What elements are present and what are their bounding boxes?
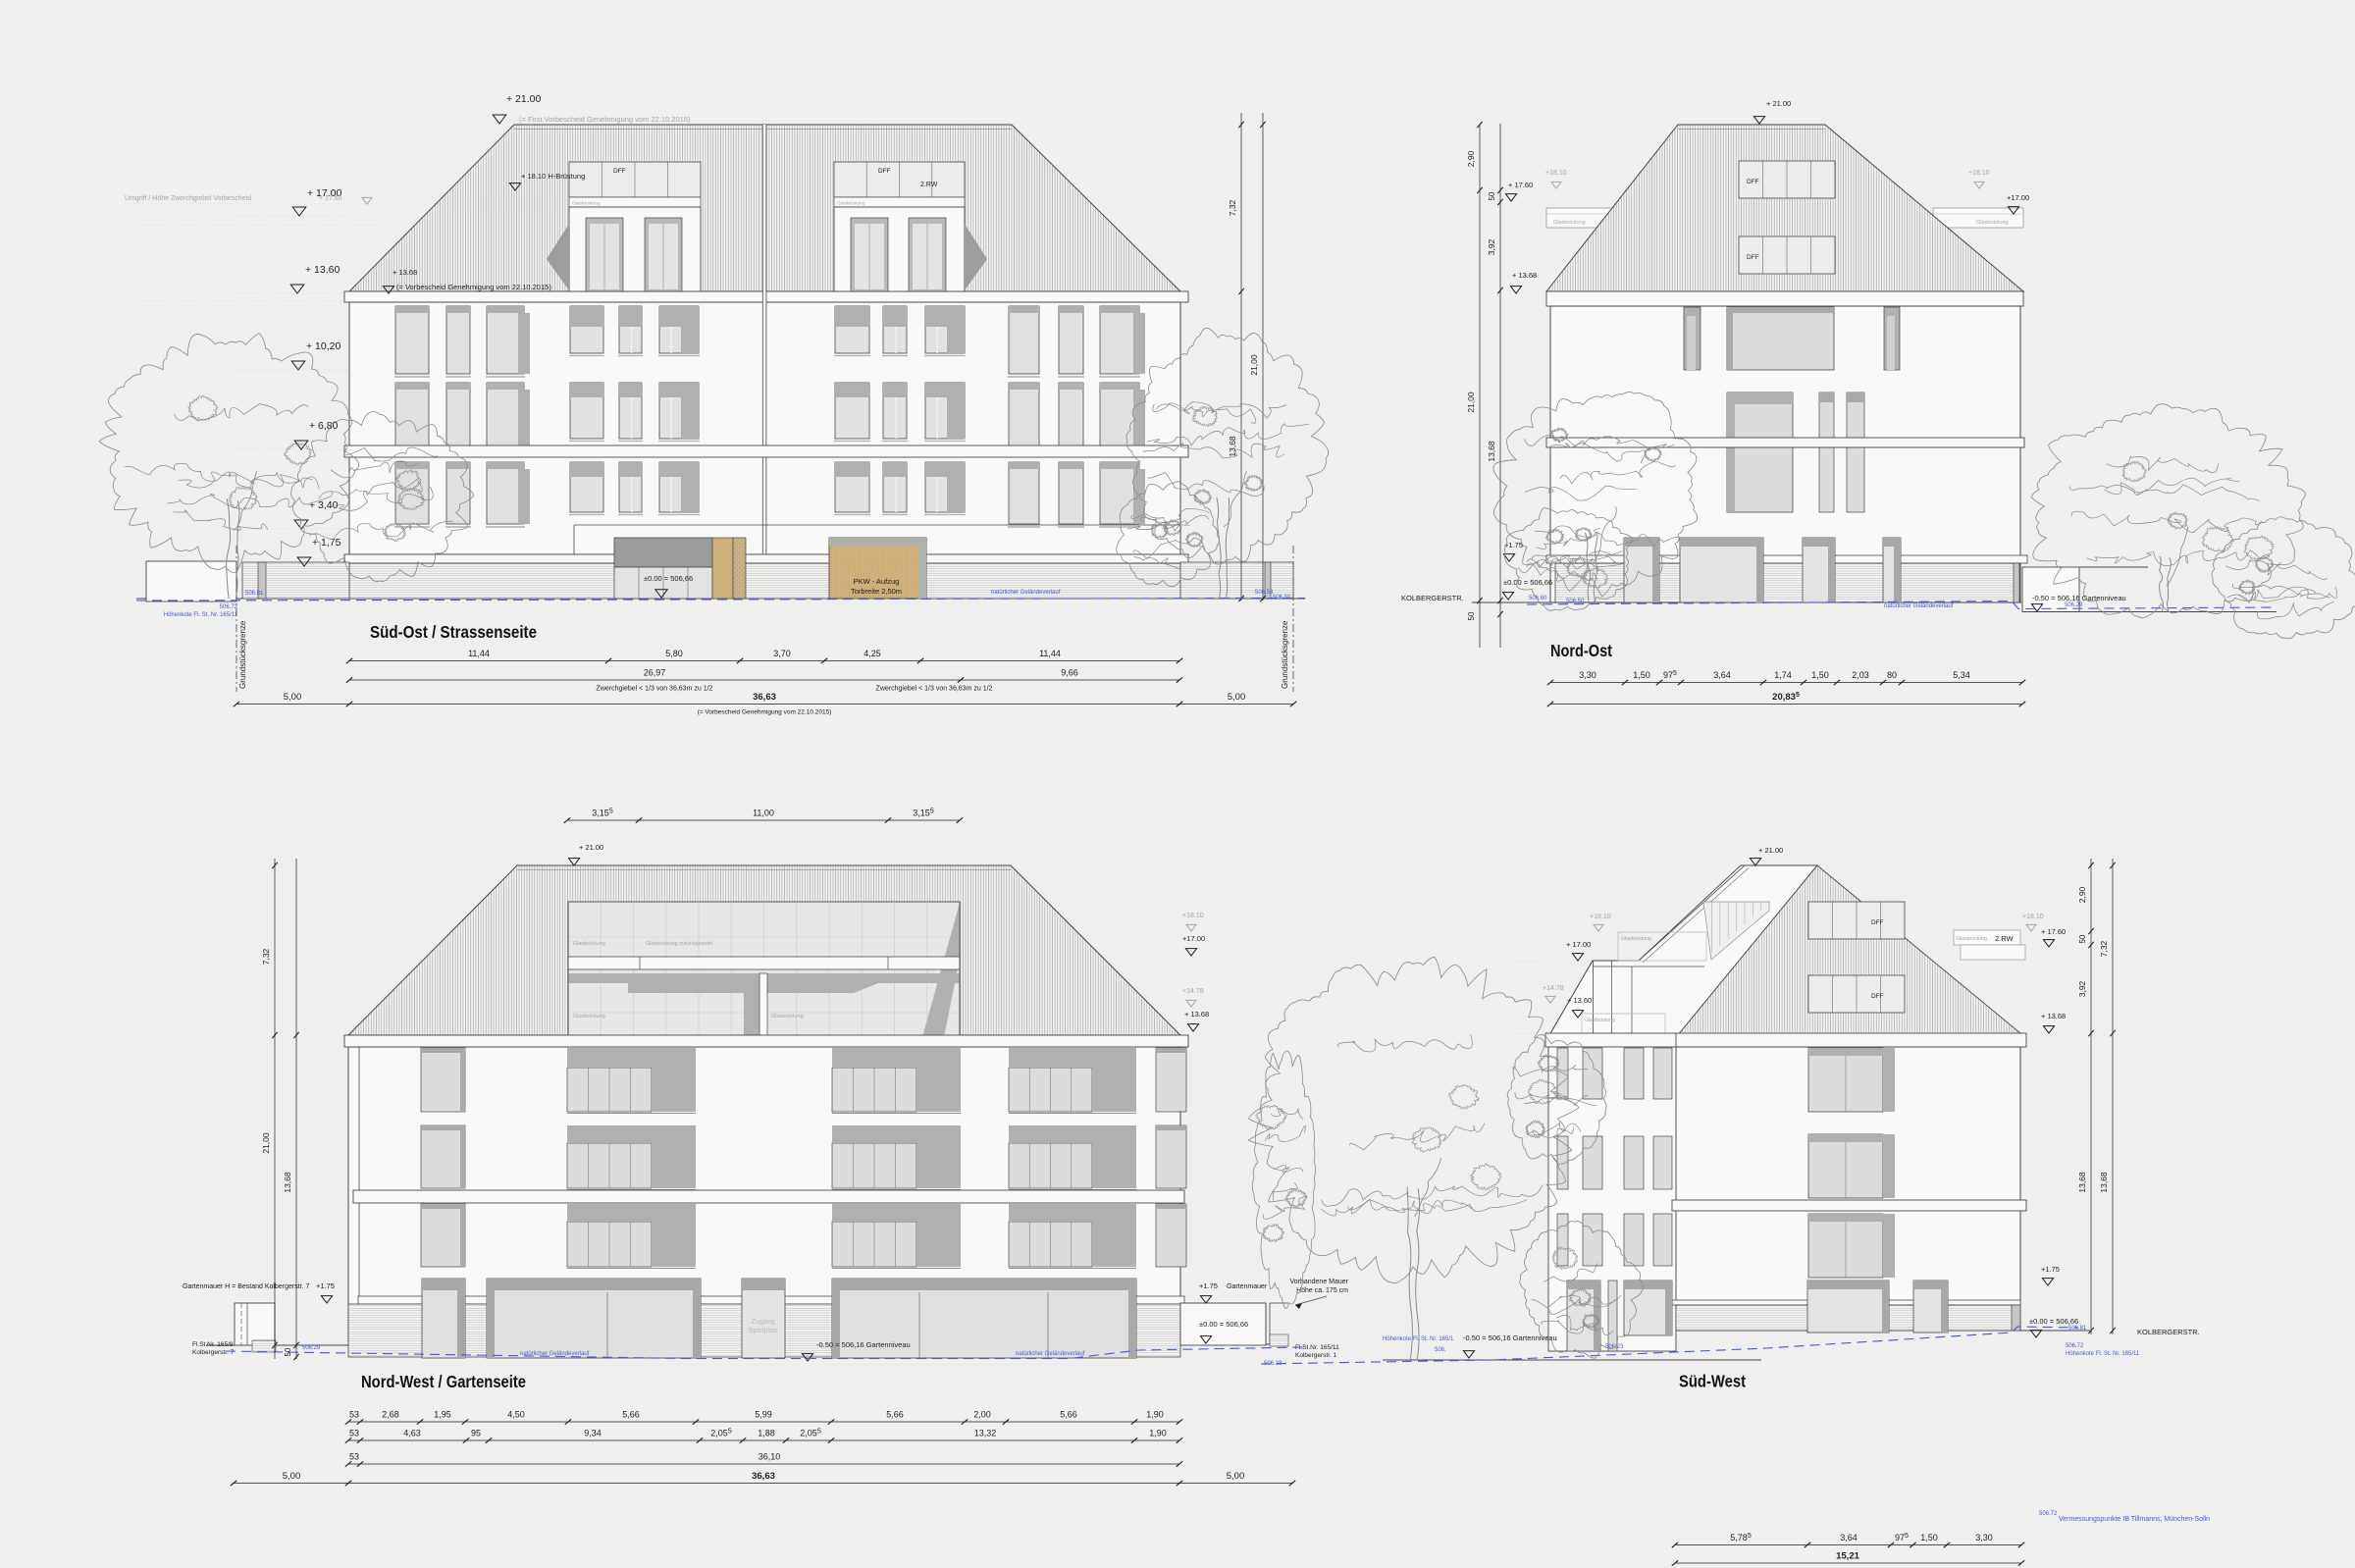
svg-text:Glasbrüstung: Glasbrüstung xyxy=(1957,936,1987,942)
svg-text:2,00: 2,00 xyxy=(973,1410,991,1420)
svg-text:3,70: 3,70 xyxy=(773,649,791,658)
svg-text:36,63: 36,63 xyxy=(753,692,776,703)
svg-text:Vorhandene Mauer: Vorhandene Mauer xyxy=(1289,1279,1348,1285)
svg-text:(= Vorbescheid Genehmigung vom: (= Vorbescheid Genehmigung vom 22.10.201… xyxy=(396,283,551,291)
svg-text:Glasbrüstung: Glasbrüstung xyxy=(573,1014,605,1019)
svg-text:506.50: 506.50 xyxy=(1566,599,1585,604)
svg-text:KOLBERGERSTR.: KOLBERGERSTR. xyxy=(2137,1328,2200,1336)
svg-text:2.RW: 2.RW xyxy=(920,182,938,188)
svg-text:36,10: 36,10 xyxy=(759,1452,781,1462)
svg-text:Grundstücksgrenze: Grundstücksgrenze xyxy=(1281,620,1289,689)
svg-text:+ 21.00: + 21.00 xyxy=(1766,99,1791,108)
svg-text:Höhenkote Fl. St. Nr. 165/11: Höhenkote Fl. St. Nr. 165/11 xyxy=(2066,1351,2140,1357)
svg-text:Glasbrüstung zurückgesetzt: Glasbrüstung zurückgesetzt xyxy=(646,941,713,947)
svg-text:7,32: 7,32 xyxy=(1228,199,1237,216)
svg-text:-0.50 = 506,16 Gartenniveau: -0.50 = 506,16 Gartenniveau xyxy=(2032,594,2126,602)
svg-text:KOLBERGERSTR.: KOLBERGERSTR. xyxy=(1401,594,1464,602)
svg-text:DFF: DFF xyxy=(613,168,626,175)
svg-text:4,50: 4,50 xyxy=(507,1410,525,1420)
svg-text:+ 13.60: + 13.60 xyxy=(305,264,340,276)
svg-text:+ 13.68: + 13.68 xyxy=(1184,1010,1209,1019)
svg-text:Glasbrüstung: Glasbrüstung xyxy=(1621,936,1651,942)
svg-text:1,50: 1,50 xyxy=(1920,1533,1938,1542)
svg-text:1,95: 1,95 xyxy=(434,1410,451,1420)
svg-text:-0.50 = 506,16 Gartenniveau: -0.50 = 506,16 Gartenniveau xyxy=(816,1340,911,1349)
svg-text:13,32: 13,32 xyxy=(974,1429,997,1438)
svg-text:2,03: 2,03 xyxy=(1852,670,1869,680)
svg-text:+ 17.60: + 17.60 xyxy=(1508,181,1533,189)
svg-text:9,66: 9,66 xyxy=(1061,668,1078,678)
svg-text:+ 13.68: + 13.68 xyxy=(1512,271,1537,280)
svg-text:Höhe ca. 175 cm: Höhe ca. 175 cm xyxy=(1296,1287,1348,1294)
svg-text:+17.00: +17.00 xyxy=(2007,193,2029,202)
svg-text:21,00: 21,00 xyxy=(261,1132,271,1154)
svg-text:+18.10: +18.10 xyxy=(1968,170,1990,177)
svg-text:15,21: 15,21 xyxy=(1836,1551,1859,1562)
svg-text:5,66: 5,66 xyxy=(1060,1410,1077,1420)
svg-text:11,00: 11,00 xyxy=(753,809,774,818)
svg-text:natürlicher Geländeverlauf: natürlicher Geländeverlauf xyxy=(1016,1351,1085,1357)
svg-text:+ 17.60: + 17.60 xyxy=(319,195,342,202)
svg-text:3,30: 3,30 xyxy=(1579,670,1596,680)
svg-text:Zwerchgiebel < 1/3 von 36,63m: Zwerchgiebel < 1/3 von 36,63m zu 1/2 xyxy=(876,686,993,693)
svg-text:+1.75: +1.75 xyxy=(2041,1265,2060,1274)
svg-text:±0.00 = 506,66: ±0.00 = 506,66 xyxy=(1199,1320,1248,1329)
svg-text:Gartenmauer: Gartenmauer xyxy=(1227,1283,1268,1290)
svg-text:Glasbrüstung: Glasbrüstung xyxy=(1553,220,1586,226)
svg-text:2,90: 2,90 xyxy=(2077,886,2087,903)
svg-text:Zwerchgiebel < 1/3 von 36,63m: Zwerchgiebel < 1/3 von 36,63m zu 1/2 xyxy=(597,686,713,693)
svg-text:+ 13.68: + 13.68 xyxy=(392,268,417,277)
svg-text:21,00: 21,00 xyxy=(1249,354,1259,376)
svg-text:4,63: 4,63 xyxy=(403,1429,421,1438)
svg-text:5,66: 5,66 xyxy=(886,1410,904,1420)
svg-text:5,00: 5,00 xyxy=(284,692,302,703)
svg-text:3,64: 3,64 xyxy=(1713,670,1731,680)
svg-text:+ 13.60: + 13.60 xyxy=(1567,996,1592,1005)
svg-text:+ 10,20: + 10,20 xyxy=(306,340,340,352)
svg-text:5,00: 5,00 xyxy=(1227,1471,1245,1482)
svg-text:1,88: 1,88 xyxy=(758,1429,775,1438)
svg-text:506.81: 506.81 xyxy=(245,591,264,597)
svg-text:9,34: 9,34 xyxy=(584,1429,602,1438)
svg-text:13,68: 13,68 xyxy=(2077,1172,2087,1193)
svg-text:50: 50 xyxy=(284,1347,292,1356)
svg-text:+14.78: +14.78 xyxy=(1543,985,1564,992)
svg-text:DFF: DFF xyxy=(1871,993,1884,1000)
svg-text:+18.10: +18.10 xyxy=(1545,170,1567,177)
svg-text:+1.75: +1.75 xyxy=(1199,1281,1218,1290)
svg-text:50: 50 xyxy=(1488,191,1496,200)
svg-text:Höhenkote Fl. St. Nr. 165/11: Höhenkote Fl. St. Nr. 165/11 xyxy=(164,612,238,618)
svg-text:Grundstücksgrenze: Grundstücksgrenze xyxy=(238,620,247,689)
svg-text:Kolbergerstr. 1: Kolbergerstr. 1 xyxy=(1295,1352,1337,1359)
svg-text:Torbreite 2,50m: Torbreite 2,50m xyxy=(851,587,902,596)
svg-text:Glasbrüstung: Glasbrüstung xyxy=(837,201,865,207)
svg-text:Spielplatz: Spielplatz xyxy=(749,1328,779,1334)
svg-text:Kolbergerstr. 7: Kolbergerstr. 7 xyxy=(192,1349,235,1356)
svg-text:506.29: 506.29 xyxy=(302,1345,321,1351)
svg-text:95: 95 xyxy=(471,1429,481,1438)
svg-text:1,74: 1,74 xyxy=(1774,670,1792,680)
svg-text:±0.00 = 506,66: ±0.00 = 506,66 xyxy=(644,574,693,583)
svg-text:+ 21.00: + 21.00 xyxy=(1758,846,1783,855)
svg-text:Gartenmauer H = Bestand Kolber: Gartenmauer H = Bestand Kolbergerstr. 7 xyxy=(183,1283,309,1290)
svg-text:7,32: 7,32 xyxy=(261,948,271,965)
svg-text:+ 21.00: + 21.00 xyxy=(579,843,603,852)
svg-text:506.72: 506.72 xyxy=(220,604,238,610)
svg-text:26,97: 26,97 xyxy=(644,668,666,678)
svg-text:Fl.St.Nr. 165/8: Fl.St.Nr. 165/8 xyxy=(192,1341,234,1348)
svg-text:53: 53 xyxy=(349,1410,359,1420)
svg-text:+ 18.10 H-Brüstung: + 18.10 H-Brüstung xyxy=(521,172,585,181)
svg-text:1,50: 1,50 xyxy=(1811,670,1829,680)
svg-text:506.58: 506.58 xyxy=(1255,590,1274,596)
svg-text:13,68: 13,68 xyxy=(1487,441,1496,462)
svg-text:3,30: 3,30 xyxy=(1975,1533,1993,1542)
svg-text:+ 17.60: + 17.60 xyxy=(2041,927,2066,936)
svg-text:Glasbrüstung: Glasbrüstung xyxy=(573,941,605,947)
svg-text:13,68: 13,68 xyxy=(2099,1172,2109,1193)
svg-text:+ 21.00: + 21.00 xyxy=(506,93,541,105)
svg-text:Glasbrüstung: Glasbrüstung xyxy=(771,1014,804,1019)
svg-text:2.RW: 2.RW xyxy=(1995,934,2015,943)
svg-text:506.29: 506.29 xyxy=(2065,602,2083,608)
svg-text:Nord-Ost: Nord-Ost xyxy=(1550,641,1612,660)
svg-text:53: 53 xyxy=(349,1452,359,1462)
svg-text:Glasbrüstung: Glasbrüstung xyxy=(572,201,601,207)
svg-text:DFF: DFF xyxy=(878,168,891,175)
svg-text:5,00: 5,00 xyxy=(1228,692,1246,703)
svg-text:Vermessungspunkte IB Tillmanns: Vermessungspunkte IB Tillmanns, München-… xyxy=(2059,1516,2210,1523)
svg-text:20,835: 20,835 xyxy=(1772,692,1800,704)
svg-text:4,25: 4,25 xyxy=(863,649,881,658)
svg-text:11,44: 11,44 xyxy=(468,649,490,658)
svg-text:natürlicher Geländeverlauf: natürlicher Geländeverlauf xyxy=(1884,603,1954,609)
svg-text:Süd-West: Süd-West xyxy=(1679,1372,1746,1391)
svg-text:13,68: 13,68 xyxy=(283,1172,292,1193)
svg-text:Süd-Ost / Strassenseite: Süd-Ost / Strassenseite xyxy=(370,622,537,642)
svg-text:7,32: 7,32 xyxy=(2099,940,2109,957)
svg-text:Glasbrüstung: Glasbrüstung xyxy=(1585,1018,1615,1023)
svg-text:+17.00: +17.00 xyxy=(1182,934,1205,943)
svg-text:36,63: 36,63 xyxy=(752,1471,775,1482)
svg-text:5,80: 5,80 xyxy=(665,649,683,658)
svg-text:80: 80 xyxy=(1887,670,1897,680)
svg-text:50: 50 xyxy=(1467,611,1476,620)
svg-text:1,90: 1,90 xyxy=(1146,1410,1164,1420)
svg-text:3,64: 3,64 xyxy=(1840,1533,1858,1542)
svg-text:3,92: 3,92 xyxy=(2077,980,2087,997)
svg-text:2,90: 2,90 xyxy=(1466,150,1476,167)
svg-text:5,34: 5,34 xyxy=(1953,670,1970,680)
svg-text:±0.00 = 506,66: ±0.00 = 506,66 xyxy=(2029,1317,2078,1326)
svg-text:13,68: 13,68 xyxy=(1228,436,1237,457)
svg-text:506.72: 506.72 xyxy=(2066,1343,2084,1349)
svg-text:Glasbrüstung: Glasbrüstung xyxy=(1976,220,2009,226)
svg-text:±0.00 = 506,66: ±0.00 = 506,66 xyxy=(1503,578,1552,587)
svg-text:DFF: DFF xyxy=(1747,254,1759,261)
svg-text:1,50: 1,50 xyxy=(1633,670,1650,680)
svg-text:PKW - Aufzug: PKW - Aufzug xyxy=(854,577,900,586)
svg-text:+14.78: +14.78 xyxy=(1182,988,1204,995)
svg-text:natürlicher Geländeverlauf: natürlicher Geländeverlauf xyxy=(991,590,1061,596)
svg-text:Umgriff / Höhe Zwerchgiebel Vo: Umgriff / Höhe Zwerchgiebel Vorbescheid xyxy=(125,195,251,202)
svg-text:5,66: 5,66 xyxy=(622,1410,640,1420)
svg-text:1,90: 1,90 xyxy=(1149,1429,1167,1438)
svg-text:+18.10: +18.10 xyxy=(1590,914,1611,920)
svg-text:+18.10: +18.10 xyxy=(2022,914,2044,920)
svg-text:+1.75: +1.75 xyxy=(316,1281,335,1290)
svg-text:5,00: 5,00 xyxy=(283,1471,301,1482)
svg-text:506.50: 506.50 xyxy=(1273,595,1291,601)
svg-text:DFF: DFF xyxy=(1747,179,1759,185)
svg-text:+18.10: +18.10 xyxy=(1182,913,1204,919)
svg-text:50: 50 xyxy=(2078,934,2087,943)
svg-text:21,00: 21,00 xyxy=(1466,392,1476,413)
svg-text:Nord-West / Gartenseite: Nord-West / Gartenseite xyxy=(361,1372,526,1391)
svg-text:11,44: 11,44 xyxy=(1039,649,1061,658)
svg-text:DFF: DFF xyxy=(1871,919,1884,926)
svg-text:2,68: 2,68 xyxy=(382,1410,399,1420)
svg-text:(= First Vorbescheid Genehmigu: (= First Vorbescheid Genehmigung vom 22.… xyxy=(519,115,691,124)
svg-text:506.72: 506.72 xyxy=(2039,1511,2058,1517)
svg-text:5,99: 5,99 xyxy=(755,1410,772,1420)
svg-text:(= Vorbescheid Genehmigung vom: (= Vorbescheid Genehmigung vom 22.10.201… xyxy=(698,709,832,716)
svg-text:+ 13.68: + 13.68 xyxy=(2041,1012,2066,1020)
svg-text:506,: 506, xyxy=(1435,1347,1446,1353)
svg-text:Zugang: Zugang xyxy=(752,1319,775,1326)
svg-text:53: 53 xyxy=(349,1429,359,1438)
svg-text:506.81: 506.81 xyxy=(2068,1326,2087,1332)
svg-text:+ 17.00: + 17.00 xyxy=(1566,940,1591,949)
svg-text:3,92: 3,92 xyxy=(1487,238,1496,255)
